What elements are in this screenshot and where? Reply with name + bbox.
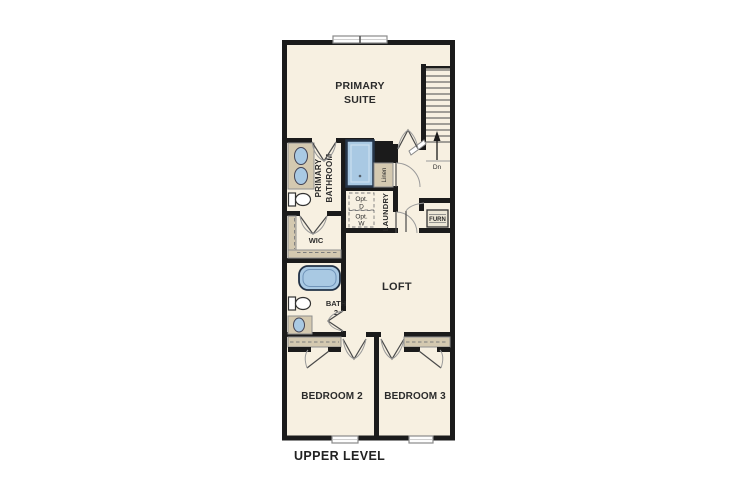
opt-dryer-line1: Opt. [355,196,367,203]
wall-suite-door-stub-w [393,144,398,150]
shower-drain [359,175,362,178]
bath2-label-line1: BATH [326,299,346,308]
stair-down-label: Dn [433,164,442,171]
wall-bedrooms-north-b [366,332,381,337]
linen-label: Linen [382,168,388,183]
wall-furn-west-stub [419,203,424,211]
wall-wic-south [284,258,346,263]
wall-wic-north-a [284,211,300,216]
loft-label: LOFT [382,281,412,293]
floorplan-page: Dn PRIMARY BATHROOM Linen Opt. D Opt. W … [0,0,750,500]
closet-stub [404,347,420,352]
wall-bedrooms-north-c [404,332,452,337]
bedroom3-label: BEDROOM 3 [384,391,446,402]
bedroom2-label: BEDROOM 2 [301,391,363,402]
primary-bathroom-label-line2: BATHROOM [325,154,334,203]
primary-suite-label-line1: PRIMARY [335,80,384,92]
wic-label: WIC [309,236,324,245]
wall-hall-b [393,187,398,212]
sink-icon [295,168,308,185]
wall-furn-top [419,198,450,203]
plan-title: UPPER LEVEL [294,449,385,463]
wic-shelf-bottom [288,250,341,258]
floorplan-canvas: Dn PRIMARY BATHROOM Linen Opt. D Opt. W … [0,0,750,500]
wall-stair-west [421,64,426,142]
toilet-tank [289,193,296,206]
opt-washer-line2: W [358,221,365,228]
laundry-label: LAUNDRY [381,193,390,232]
sink-icon [295,148,308,165]
wall-stair-top [424,66,450,69]
sink-icon [294,318,305,332]
toilet-tank [289,297,296,310]
primary-suite-label-line2: SUITE [344,94,376,106]
opt-washer-line1: Opt. [355,214,367,221]
wall-wic-north-b [327,211,346,216]
primary-bathroom-label-line1: PRIMARY [314,158,323,197]
toilet-icon [296,194,311,206]
wall-furn-bottom [419,228,450,233]
furnace-label: FURN [429,217,446,223]
wall-hall-a [393,150,398,163]
closet-stub [328,347,341,352]
closet-stub [437,347,450,352]
wall-bedrooms-center [374,337,379,438]
toilet-icon [296,298,311,310]
wall-bath-north-a [284,138,312,143]
opt-dryer-line2: D [359,204,364,211]
wall-wic-east [341,215,346,263]
